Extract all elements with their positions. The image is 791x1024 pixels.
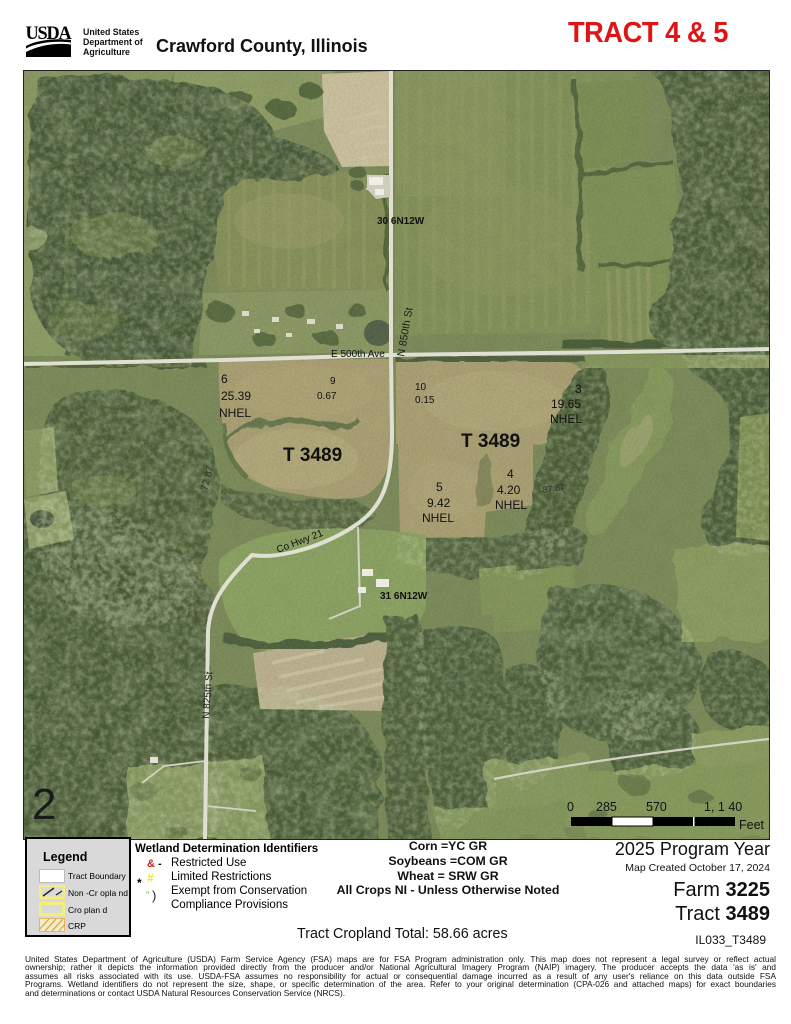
svg-text:T 3489: T 3489 xyxy=(461,431,520,452)
svg-text:9: 9 xyxy=(330,376,336,387)
svg-text:0.67: 0.67 xyxy=(317,391,337,402)
svg-text:570: 570 xyxy=(646,800,667,814)
svg-text:31 6N12W: 31 6N12W xyxy=(380,591,428,602)
svg-text:6: 6 xyxy=(221,372,228,386)
svg-text:30 6N12W: 30 6N12W xyxy=(377,216,425,227)
svg-text:2: 2 xyxy=(32,780,56,829)
svg-text:NHEL: NHEL xyxy=(495,498,527,512)
svg-text:4.20: 4.20 xyxy=(497,483,521,497)
svg-text:0.15: 0.15 xyxy=(415,395,435,406)
svg-text:T 3489: T 3489 xyxy=(283,445,342,466)
svg-text:1, 1 40: 1, 1 40 xyxy=(704,800,742,814)
svg-text:Feet: Feet xyxy=(739,818,765,832)
svg-text:25.39: 25.39 xyxy=(221,389,251,403)
svg-text:285: 285 xyxy=(596,800,617,814)
svg-text:4: 4 xyxy=(507,467,514,481)
svg-text:19.65: 19.65 xyxy=(551,397,581,411)
svg-text:NHEL: NHEL xyxy=(422,511,454,525)
svg-text:NHEL: NHEL xyxy=(219,406,251,420)
svg-text:5: 5 xyxy=(436,480,443,494)
svg-text:NHEL: NHEL xyxy=(550,412,582,426)
svg-text:0: 0 xyxy=(567,800,574,814)
svg-text:10: 10 xyxy=(415,382,427,393)
svg-text:E 500th Ave: E 500th Ave xyxy=(331,349,385,360)
svg-text:3: 3 xyxy=(575,382,582,396)
svg-text:9.42: 9.42 xyxy=(427,496,451,510)
